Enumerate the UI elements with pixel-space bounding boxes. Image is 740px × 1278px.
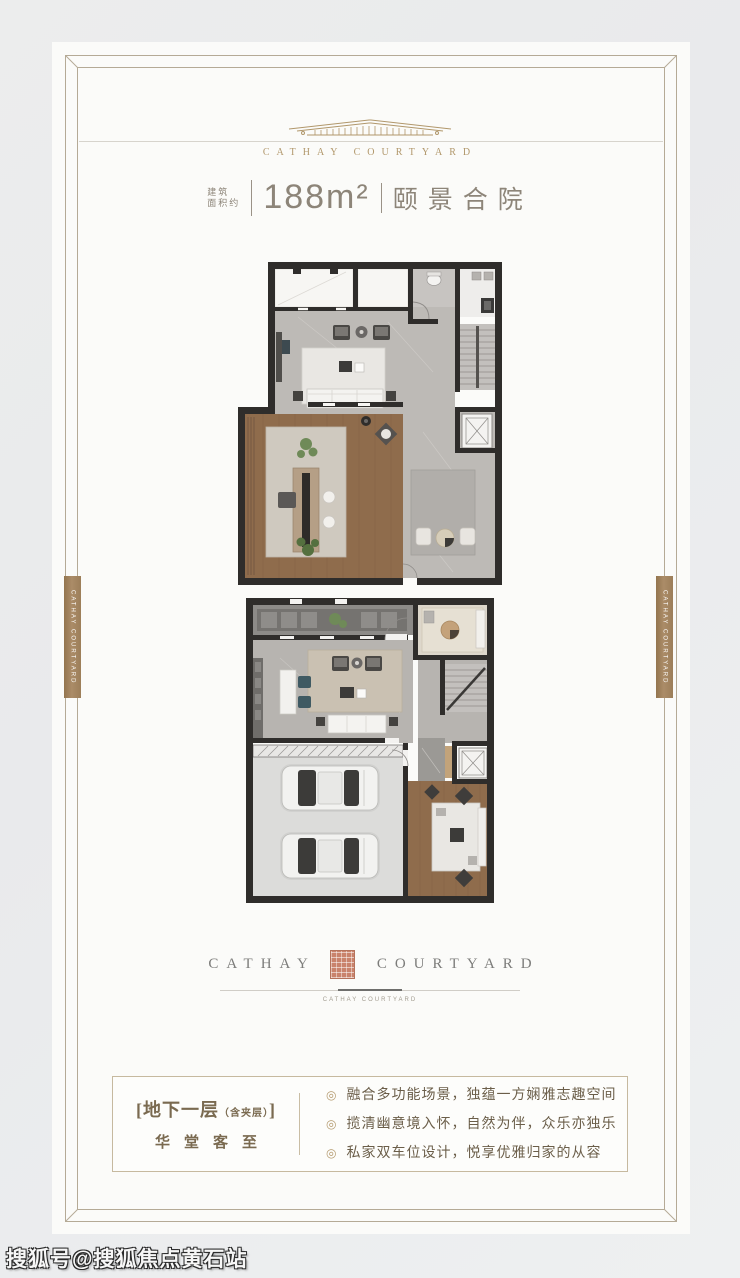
selling-point: ◎ 揽清幽意境入怀，自然为伴，众乐亦独乐 bbox=[326, 1110, 627, 1139]
logo-word-cathay: CATHAY bbox=[200, 956, 315, 973]
logo-subtext: CATHAY COURTYARD bbox=[0, 997, 740, 1003]
red-seal-icon bbox=[330, 950, 355, 979]
selling-points: ◎ 融合多功能场景，独蕴一方娴雅志趣空间 ◎ 揽清幽意境入怀，自然为伴，众乐亦独… bbox=[300, 1081, 627, 1168]
car bbox=[280, 832, 380, 880]
logo-word-courtyard: COURTYARD bbox=[369, 956, 540, 973]
elevator bbox=[459, 748, 487, 778]
floor-info-box: [地下一层（含夹层）] 华堂客至 ◎ 融合多功能场景，独蕴一方娴雅志趣空间 ◎ … bbox=[112, 1076, 628, 1172]
selling-point-text: 私家双车位设计，悦享优雅归家的从容 bbox=[346, 1139, 601, 1168]
entry-storage bbox=[257, 609, 407, 631]
floor-subtitle: 华堂客至 bbox=[113, 1131, 299, 1152]
brand-logo: CATHAY COURTYARD bbox=[0, 950, 740, 979]
side-banner-left: CATHAY COURTYARD bbox=[64, 576, 81, 698]
side-banner-left-label: CATHAY COURTYARD bbox=[70, 590, 76, 684]
divider-bar bbox=[381, 183, 382, 213]
area-headline: 建筑 面积约 188m² 颐景合院 bbox=[0, 178, 740, 217]
floor-label-block: [地下一层（含夹层）] 华堂客至 bbox=[113, 1096, 299, 1152]
selling-point-text: 揽清幽意境入怀，自然为伴，众乐亦独乐 bbox=[346, 1110, 616, 1139]
car bbox=[280, 764, 380, 812]
hall-furniture bbox=[411, 470, 475, 555]
area-prefix-label: 建筑 面积约 bbox=[207, 187, 240, 209]
area-value: 188m² bbox=[263, 178, 369, 217]
floor-title-line: [地下一层（含夹层）] bbox=[113, 1096, 299, 1122]
selling-point: ◎ 私家双车位设计，悦享优雅归家的从容 bbox=[326, 1139, 627, 1168]
elevator bbox=[462, 414, 492, 448]
unit-name: 颐景合院 bbox=[393, 180, 533, 216]
tatami-room bbox=[422, 608, 485, 652]
divider-bar bbox=[251, 180, 252, 216]
poster-page: CATHAY COURTYARD 建筑 面积约 188m² 颐景合院 bbox=[0, 0, 740, 1278]
floorplan-lower bbox=[240, 598, 500, 910]
bullet-icon: ◎ bbox=[326, 1110, 337, 1139]
side-banner-right: CATHAY COURTYARD bbox=[656, 576, 673, 698]
sohu-watermark: 搜狐号@搜狐焦点黄石站 bbox=[6, 1243, 247, 1273]
bullet-icon: ◎ bbox=[326, 1081, 337, 1110]
floor-title: 地下一层 bbox=[143, 1100, 219, 1120]
logo-divider-accent bbox=[338, 989, 402, 991]
floorplan-upper bbox=[238, 262, 502, 585]
garage-door bbox=[253, 745, 403, 757]
bullet-icon: ◎ bbox=[326, 1139, 337, 1168]
brand-wordmark-top: CATHAY COURTYARD bbox=[0, 147, 740, 158]
side-banner-right-label: CATHAY COURTYARD bbox=[662, 590, 668, 684]
selling-point-text: 融合多功能场景，独蕴一方娴雅志趣空间 bbox=[346, 1081, 616, 1110]
selling-point: ◎ 融合多功能场景，独蕴一方娴雅志趣空间 bbox=[326, 1081, 627, 1110]
stairs bbox=[445, 664, 487, 712]
eave-ornament-icon bbox=[285, 114, 455, 142]
floor-note: （含夹层） bbox=[219, 1108, 269, 1119]
